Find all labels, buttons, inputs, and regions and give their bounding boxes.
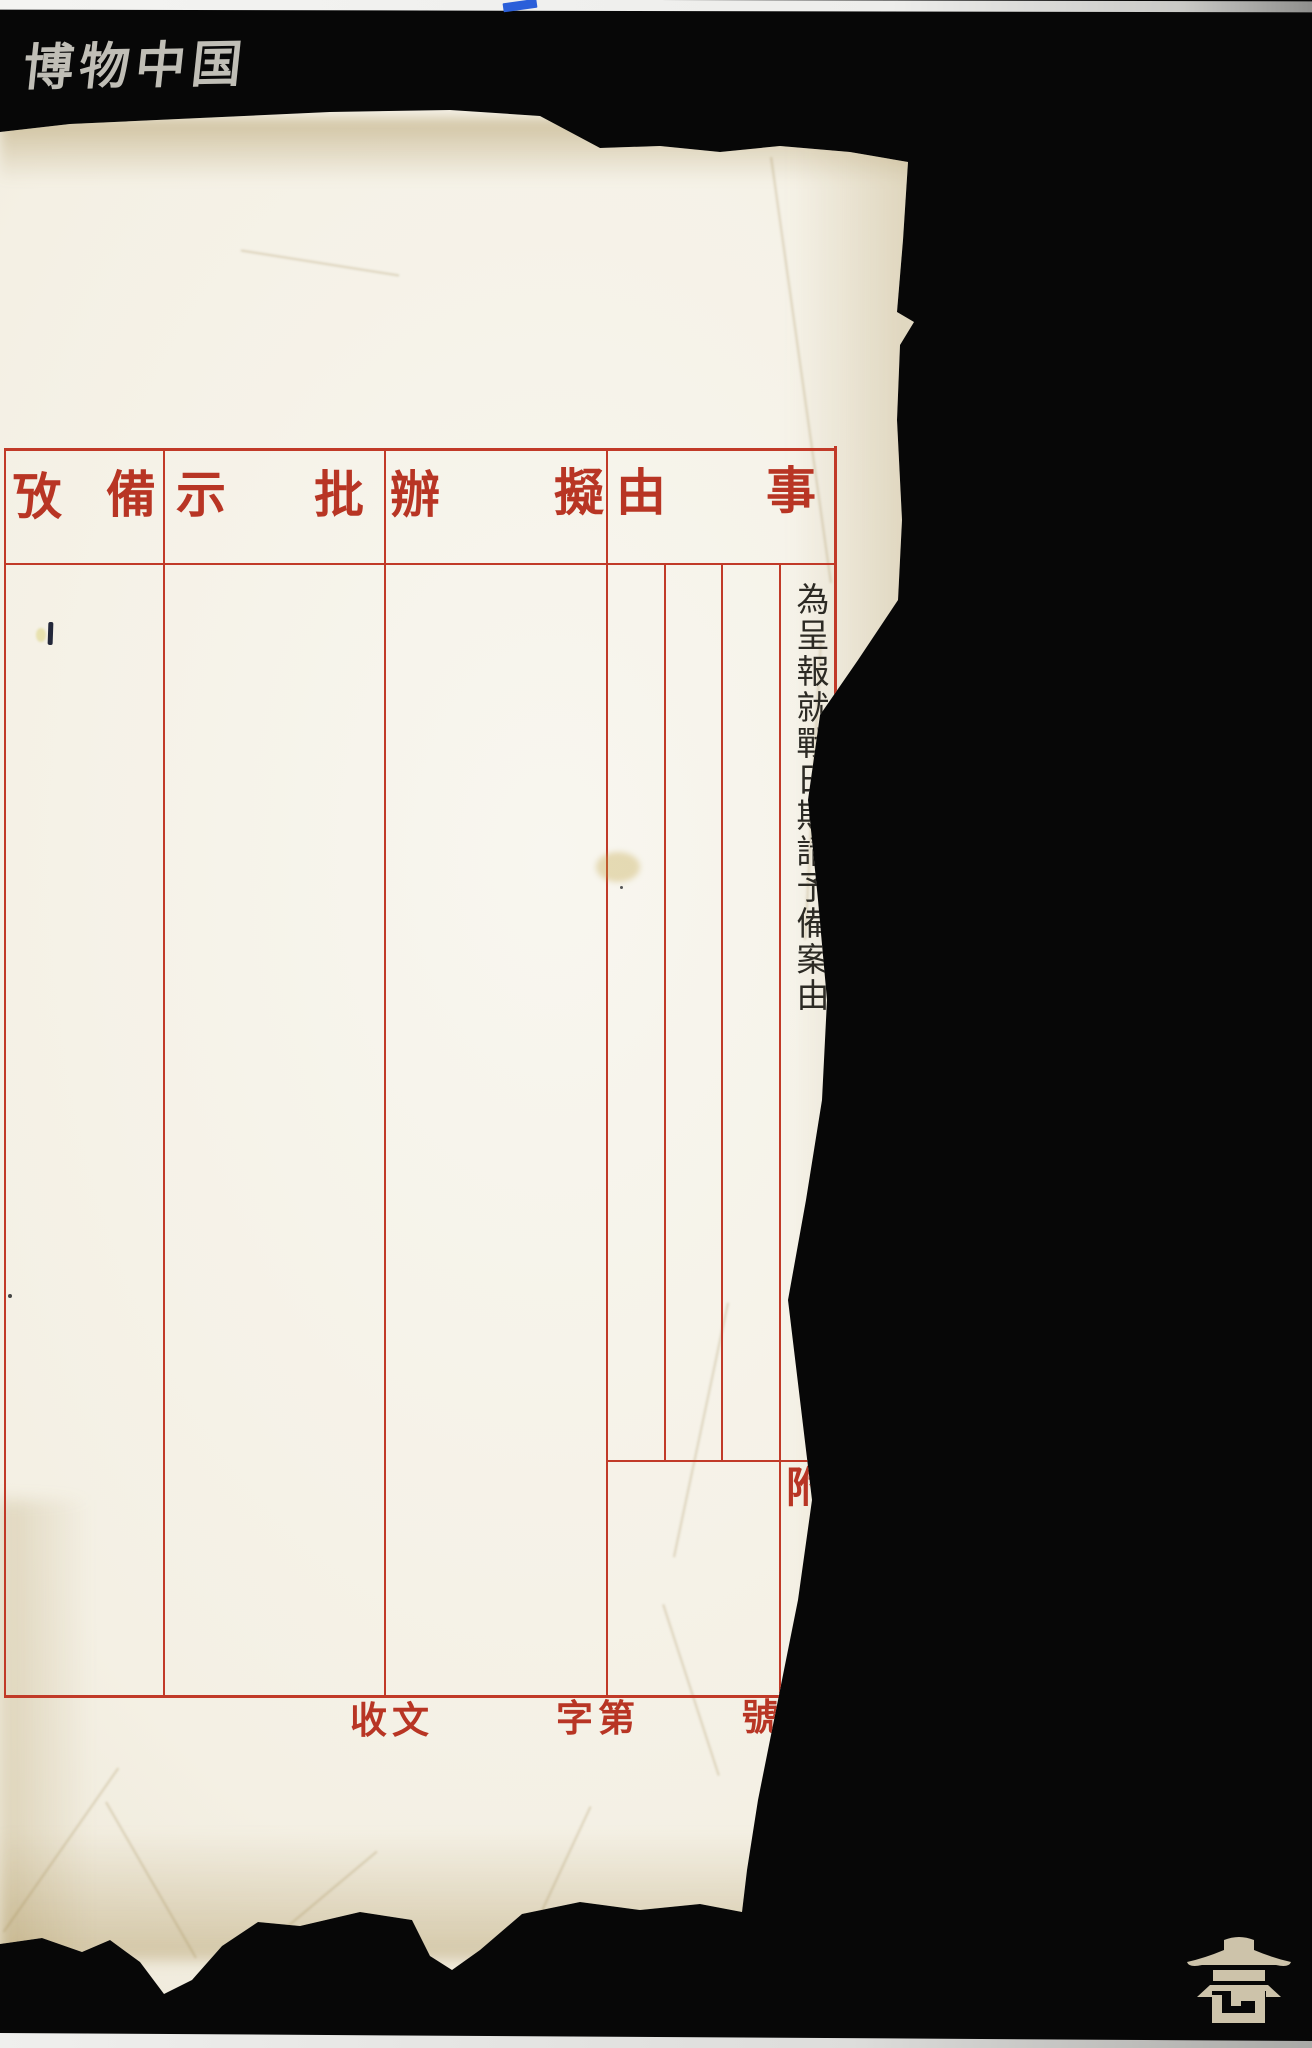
header-label-instruction-1: 批 bbox=[314, 470, 364, 520]
crease bbox=[770, 157, 832, 583]
grid-line-subcol-bottom bbox=[606, 1460, 836, 1462]
ink-speck bbox=[620, 886, 623, 889]
grid-line-subcol-2 bbox=[721, 565, 723, 1462]
crease bbox=[284, 1851, 377, 1930]
header-label-remarks-1: 備 bbox=[106, 470, 156, 520]
paper-edge-tint-corner bbox=[0, 1500, 90, 1980]
grid-line-col-remarks bbox=[163, 448, 165, 1697]
paper-edge-tint-bottom bbox=[0, 1830, 1312, 1960]
grid-line-col-instruction bbox=[384, 448, 386, 1697]
top-scanner-strip bbox=[0, 0, 1312, 12]
grid-line-header-bottom bbox=[4, 563, 836, 565]
header-label-instruction-2: 示 bbox=[176, 470, 226, 520]
grid-line-subcol-1 bbox=[664, 565, 666, 1462]
crease bbox=[662, 1604, 720, 1776]
crease bbox=[531, 1806, 592, 1934]
header-label-subject-2: 由 bbox=[616, 468, 666, 518]
attachment-label-bottom: 件 bbox=[788, 1632, 830, 1674]
header-label-proposed-1: 擬 bbox=[554, 468, 604, 518]
grid-line-top bbox=[4, 448, 836, 451]
subject-handwriting: 為呈報就戰日期請予備案由 bbox=[784, 582, 834, 1022]
header-label-remarks-2: 攷 bbox=[12, 472, 62, 522]
stain bbox=[596, 852, 640, 882]
grid-line-left bbox=[4, 448, 6, 1697]
crease bbox=[3, 1768, 119, 1933]
crease bbox=[241, 249, 399, 276]
header-label-proposed-2: 辦 bbox=[390, 470, 440, 520]
attachment-label-top: 附 bbox=[786, 1468, 828, 1510]
grid-line-subcol-3 bbox=[779, 565, 781, 1462]
grid-line-right bbox=[834, 446, 837, 1698]
ink-speck bbox=[8, 1294, 12, 1298]
paper-sheet: 事 由 擬 辦 批 示 備 攷 為呈報就戰日期請予備案由 附 件 收文 字第 號 bbox=[0, 0, 1312, 2048]
footer-label-classifier: 字第 bbox=[556, 1701, 640, 1738]
watermark-text: 博物中国 bbox=[20, 24, 252, 100]
bottom-scanner-strip bbox=[0, 2031, 1312, 2048]
crease bbox=[105, 1802, 197, 1959]
grid-line-bottom bbox=[4, 1695, 837, 1698]
grid-line-col-subject bbox=[606, 448, 608, 1697]
highlight-speck bbox=[36, 628, 46, 642]
paper-edge-tint-top bbox=[0, 118, 1312, 182]
pen-mark bbox=[48, 622, 54, 645]
paper-edge-tint-right bbox=[790, 140, 920, 1930]
footer-label-receive: 收文 bbox=[350, 1703, 434, 1740]
footer-label-number: 號 bbox=[742, 1700, 784, 1737]
grid-line-attachment bbox=[779, 1462, 781, 1697]
yellow-speck bbox=[810, 1388, 818, 1396]
header-label-subject-1: 事 bbox=[766, 466, 816, 516]
scan-background: 博物中国 事 由 擬 辦 bbox=[0, 0, 1312, 2048]
pagoda-icon bbox=[1183, 1934, 1295, 2026]
